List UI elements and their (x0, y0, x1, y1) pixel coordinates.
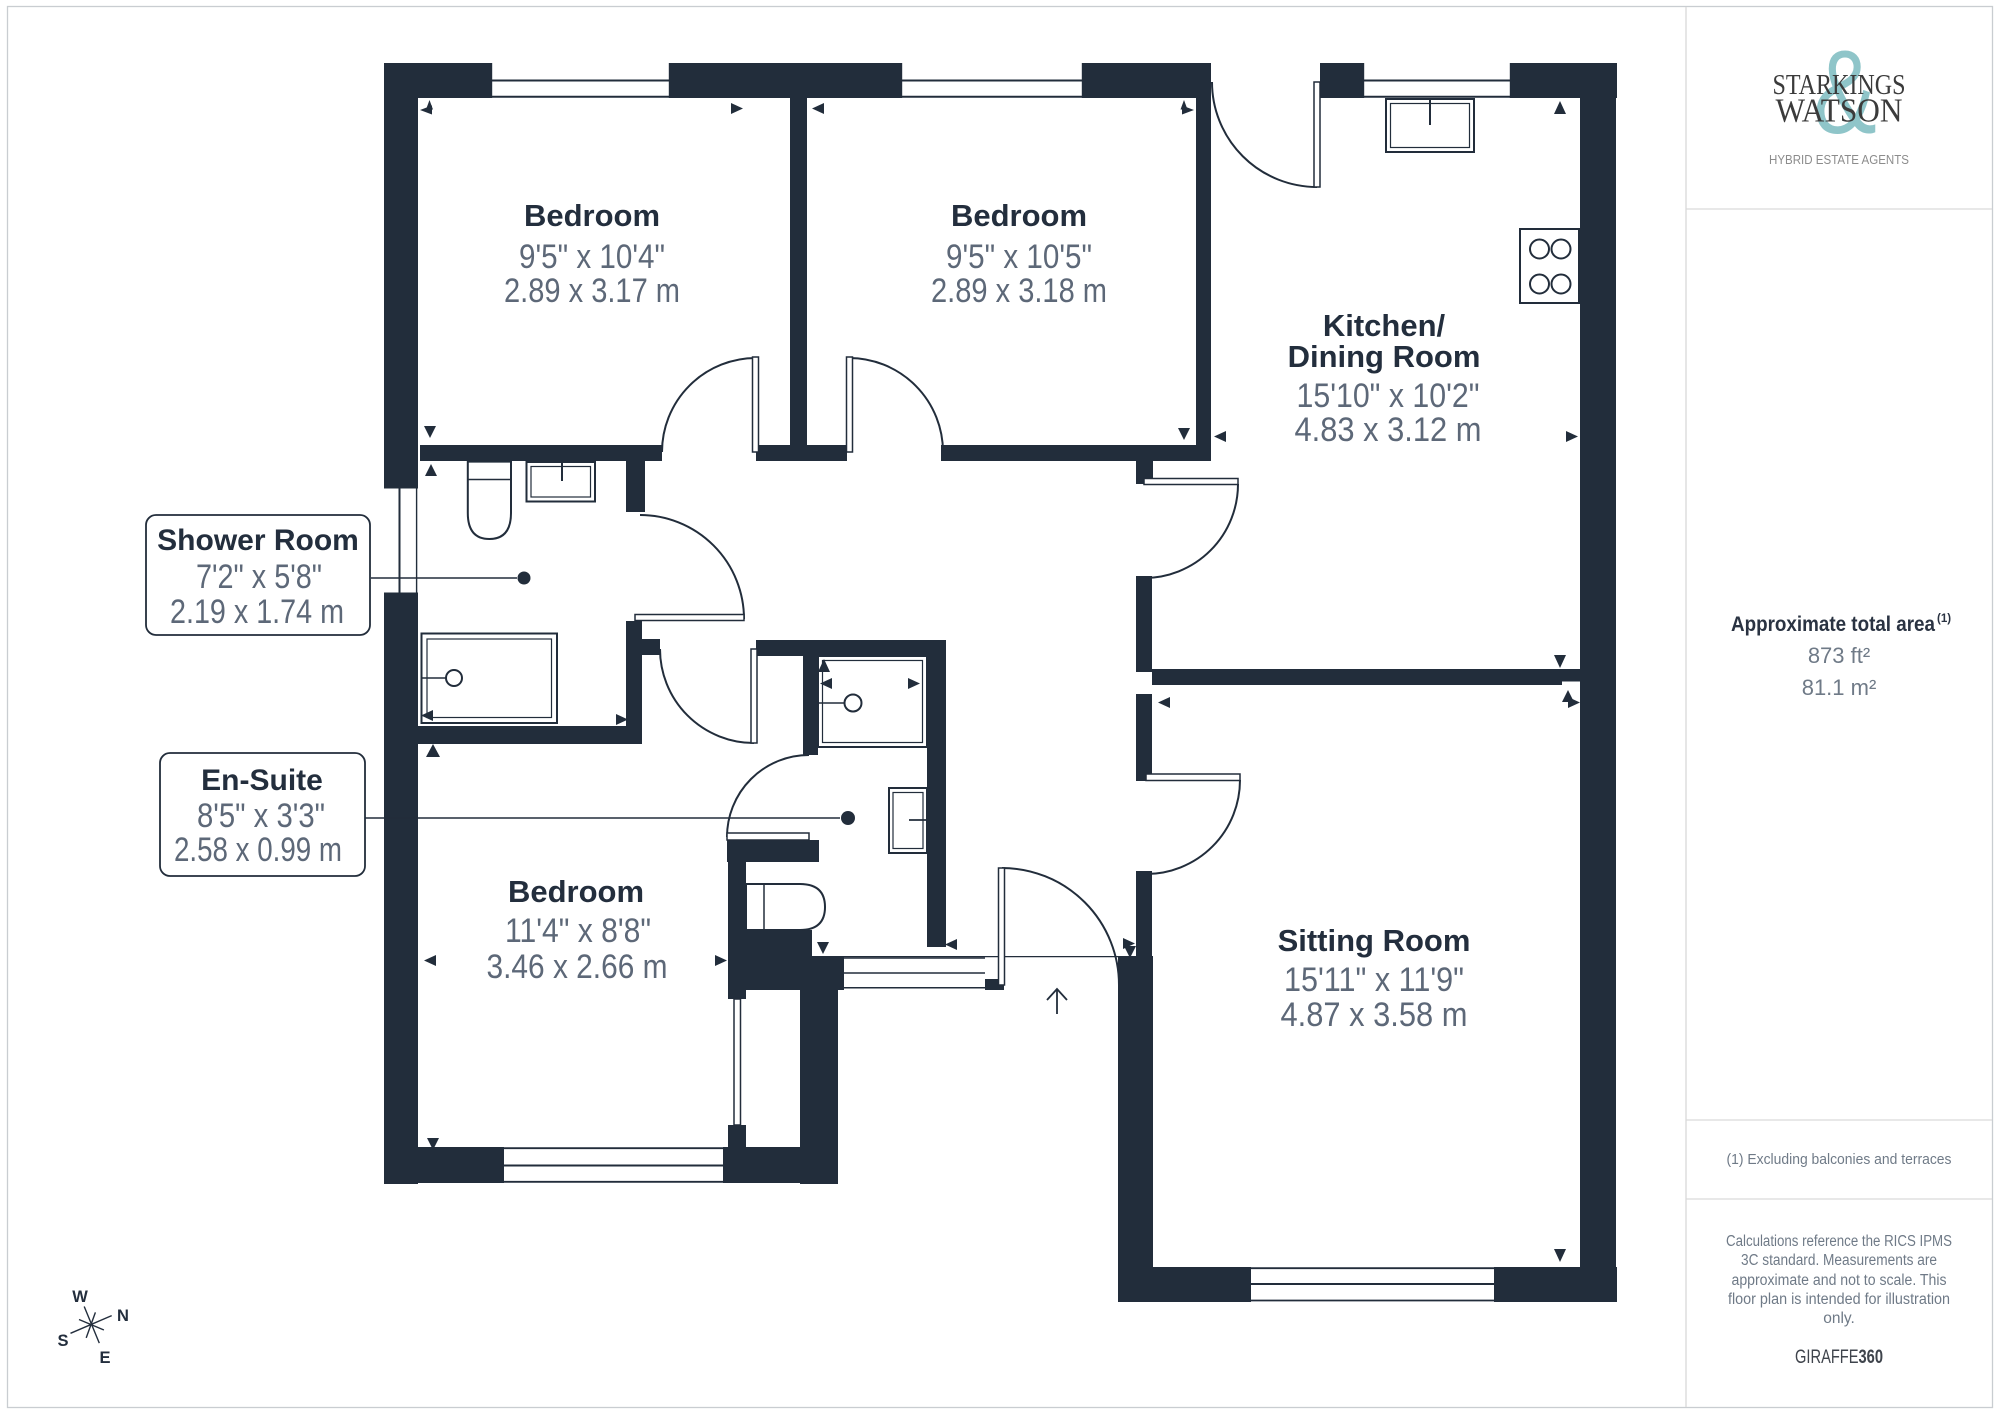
svg-text:Sitting Room: Sitting Room (1278, 923, 1471, 958)
svg-text:3.46 x 2.66 m: 3.46 x 2.66 m (487, 948, 668, 986)
svg-text:11'4" x 8'8": 11'4" x 8'8" (505, 912, 651, 950)
svg-text:3C standard. Measurements are: 3C standard. Measurements are (1741, 1252, 1937, 1269)
svg-text:only.: only. (1823, 1310, 1855, 1327)
svg-text:7'2" x 5'8": 7'2" x 5'8" (196, 558, 322, 596)
svg-text:9'5" x 10'4": 9'5" x 10'4" (519, 238, 665, 276)
svg-text:9'5" x 10'5": 9'5" x 10'5" (946, 238, 1092, 276)
svg-text:Shower Room: Shower Room (157, 524, 359, 557)
svg-text:2.19 x 1.74 m: 2.19 x 1.74 m (170, 593, 344, 631)
svg-text:S: S (57, 1332, 68, 1350)
svg-text:approximate and not to scale.: approximate and not to scale. This (1732, 1272, 1947, 1289)
svg-text:W: W (72, 1288, 88, 1306)
svg-text:4.87 x 3.58 m: 4.87 x 3.58 m (1281, 996, 1468, 1034)
svg-text:873 ft²: 873 ft² (1808, 643, 1870, 668)
svg-text:2.58 x 0.99 m: 2.58 x 0.99 m (174, 831, 342, 869)
svg-text:2.89 x 3.18 m: 2.89 x 3.18 m (931, 272, 1107, 310)
svg-text:Bedroom: Bedroom (508, 874, 644, 909)
svg-text:15'10" x 10'2": 15'10" x 10'2" (1297, 377, 1480, 415)
svg-text:81.1 m²: 81.1 m² (1802, 675, 1877, 700)
svg-text:HYBRID ESTATE AGENTS: HYBRID ESTATE AGENTS (1769, 152, 1909, 167)
svg-text:WATSON: WATSON (1776, 93, 1903, 130)
svg-text:Bedroom: Bedroom (524, 198, 660, 233)
svg-text:N: N (117, 1307, 129, 1325)
svg-text:(1) Excluding balconies and te: (1) Excluding balconies and terraces (1727, 1151, 1952, 1168)
svg-text:15'11" x 11'9": 15'11" x 11'9" (1284, 961, 1464, 999)
svg-text:4.83 x 3.12 m: 4.83 x 3.12 m (1295, 411, 1482, 449)
svg-text:Dining Room: Dining Room (1288, 339, 1481, 374)
svg-text:GIRAFFE360: GIRAFFE360 (1795, 1347, 1883, 1368)
svg-text:Calculations reference the RIC: Calculations reference the RICS IPMS (1726, 1233, 1952, 1250)
svg-text:En-Suite: En-Suite (201, 764, 323, 797)
svg-text:Kitchen/: Kitchen/ (1323, 308, 1446, 343)
svg-text:(1): (1) (1937, 613, 1951, 625)
svg-text:floor plan is intended for ill: floor plan is intended for illustration (1728, 1291, 1950, 1308)
svg-text:Approximate total area: Approximate total area (1731, 612, 1936, 636)
svg-text:Bedroom: Bedroom (951, 198, 1087, 233)
svg-text:2.89 x 3.17 m: 2.89 x 3.17 m (504, 272, 680, 310)
svg-text:8'5" x 3'3": 8'5" x 3'3" (197, 797, 325, 835)
svg-text:E: E (99, 1349, 110, 1367)
